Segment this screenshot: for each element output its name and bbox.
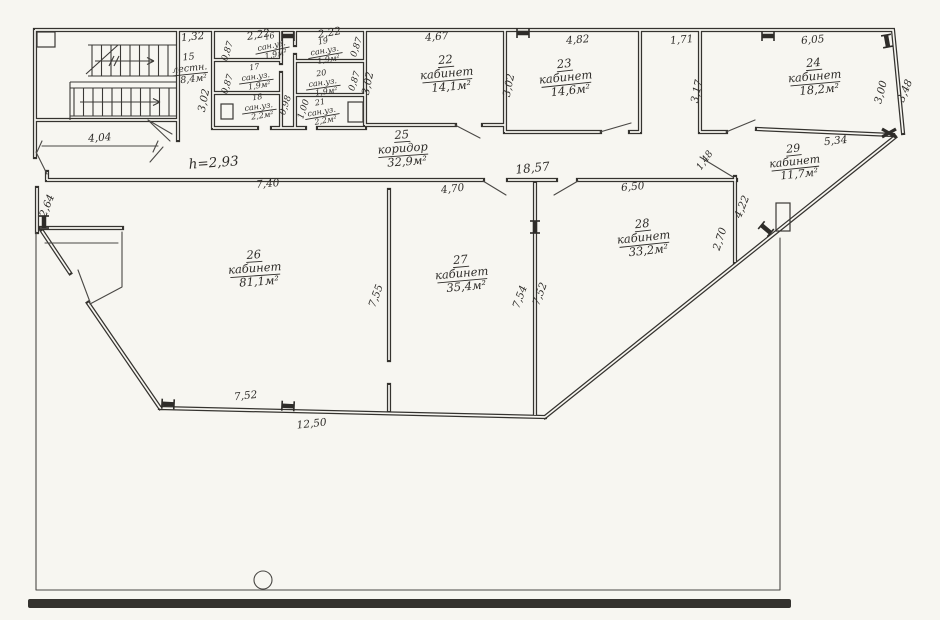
dimension-text: 6,50 <box>621 180 646 194</box>
dimension-text: 3,02 <box>196 87 213 113</box>
dimension-text: 7,52 <box>233 389 258 403</box>
room-label-27: 27кабинет35,4м² <box>433 250 490 296</box>
label-underline <box>282 406 294 407</box>
survey-point-circle <box>254 571 272 589</box>
label-underline <box>162 404 174 405</box>
dimension-label: 3,02 <box>196 87 213 113</box>
room-label-25: 25коридор32,9м² <box>376 126 430 171</box>
dimension-label: 7,55 <box>367 283 386 309</box>
dimension-text: 6,05 <box>801 33 826 47</box>
dimension-label: 4,70 <box>439 182 465 197</box>
dimension-text: 7,40 <box>256 177 281 191</box>
stair-corner-closet <box>37 32 55 47</box>
dimension-label: 4,67 <box>424 30 450 44</box>
window-sill-icon <box>530 221 540 233</box>
dimension-text: 3,00 <box>872 79 890 105</box>
dimension-label: 7,52 <box>233 389 258 403</box>
height-note-text: h=2,93 <box>188 153 239 172</box>
dimension-text: 1,71 <box>670 33 694 47</box>
room-label-18: 18сан.уз.2,2м² <box>240 90 278 122</box>
dimension-text: 1,48 <box>694 149 715 173</box>
dimension-label: 4,04 <box>87 131 112 145</box>
room-label-24: 24кабинет18,2м² <box>786 53 843 99</box>
window-sill-icon <box>881 34 893 48</box>
staircase <box>70 45 176 120</box>
dimension-label: 1,32 <box>180 30 205 44</box>
dimension-text: 2,70 <box>711 226 730 253</box>
dimension-label: 3,17 <box>689 78 706 104</box>
height-note: h=2,93 <box>188 153 239 172</box>
dimension-label: 4,82 <box>565 33 591 47</box>
scanned-floor-plan: 1,322,222,224,674,821,716,050,870,870,87… <box>0 0 940 620</box>
dimension-text: 4,82 <box>565 33 591 47</box>
room-label-29: 29кабинет11,7м² <box>767 139 822 183</box>
dimension-label: 6,05 <box>801 33 826 47</box>
dimension-label: 12,50 <box>296 416 327 431</box>
dimension-text: 4,70 <box>439 182 465 197</box>
dimension-label: 5,34 <box>823 134 848 148</box>
dimension-label: 7,40 <box>256 177 281 191</box>
dimension-label: 2,64 <box>37 193 57 220</box>
room-area: 33,2м² <box>628 241 669 259</box>
floor-plan-svg: 1,322,222,224,674,821,716,050,870,870,87… <box>0 0 940 620</box>
room-label-28: 28кабинет33,2м² <box>615 214 673 261</box>
room-label-17: 17сан.уз.1,9м² <box>237 60 275 92</box>
dimension-label: 6,50 <box>621 180 646 194</box>
scan-shadow-band <box>28 599 791 608</box>
dimension-label: 1,48 <box>694 149 715 173</box>
room-label-23: 23кабинет14,6м² <box>537 54 595 101</box>
dimension-label: 18,57 <box>515 159 551 177</box>
window-sill-icon <box>762 31 774 41</box>
dimension-text: 7,55 <box>367 283 386 309</box>
duct-box <box>348 102 363 122</box>
dimension-label: 2,70 <box>711 226 730 253</box>
dimension-label: 3,00 <box>872 79 890 105</box>
dimension-text: 18,57 <box>515 159 551 177</box>
dimension-text: 5,34 <box>823 134 848 148</box>
label-underline <box>761 225 770 233</box>
dimension-label: 1,71 <box>670 33 694 47</box>
label-underline <box>886 35 888 47</box>
fixture-box <box>221 104 233 119</box>
room-area: 14,6м² <box>550 81 591 99</box>
dimension-text: 4,67 <box>424 30 450 44</box>
room-label-26: 26кабинет81,1м² <box>227 246 283 291</box>
dimension-text: 12,50 <box>296 416 327 431</box>
dimension-text: 1,32 <box>180 30 205 44</box>
dimension-text: 7,54 <box>511 284 530 310</box>
dimension-text: 0,87 <box>349 36 365 58</box>
dimension-label: 7,54 <box>511 284 530 310</box>
dimension-text: 3,17 <box>689 78 706 104</box>
room-label-21: 21сан.уз.2,2м² <box>302 95 341 128</box>
dimension-text: 2,64 <box>37 193 57 220</box>
room-label-22: 22кабинет14,1м² <box>418 50 475 96</box>
dimension-label: 0,87 <box>349 36 365 58</box>
dimension-text: 4,04 <box>87 131 112 145</box>
